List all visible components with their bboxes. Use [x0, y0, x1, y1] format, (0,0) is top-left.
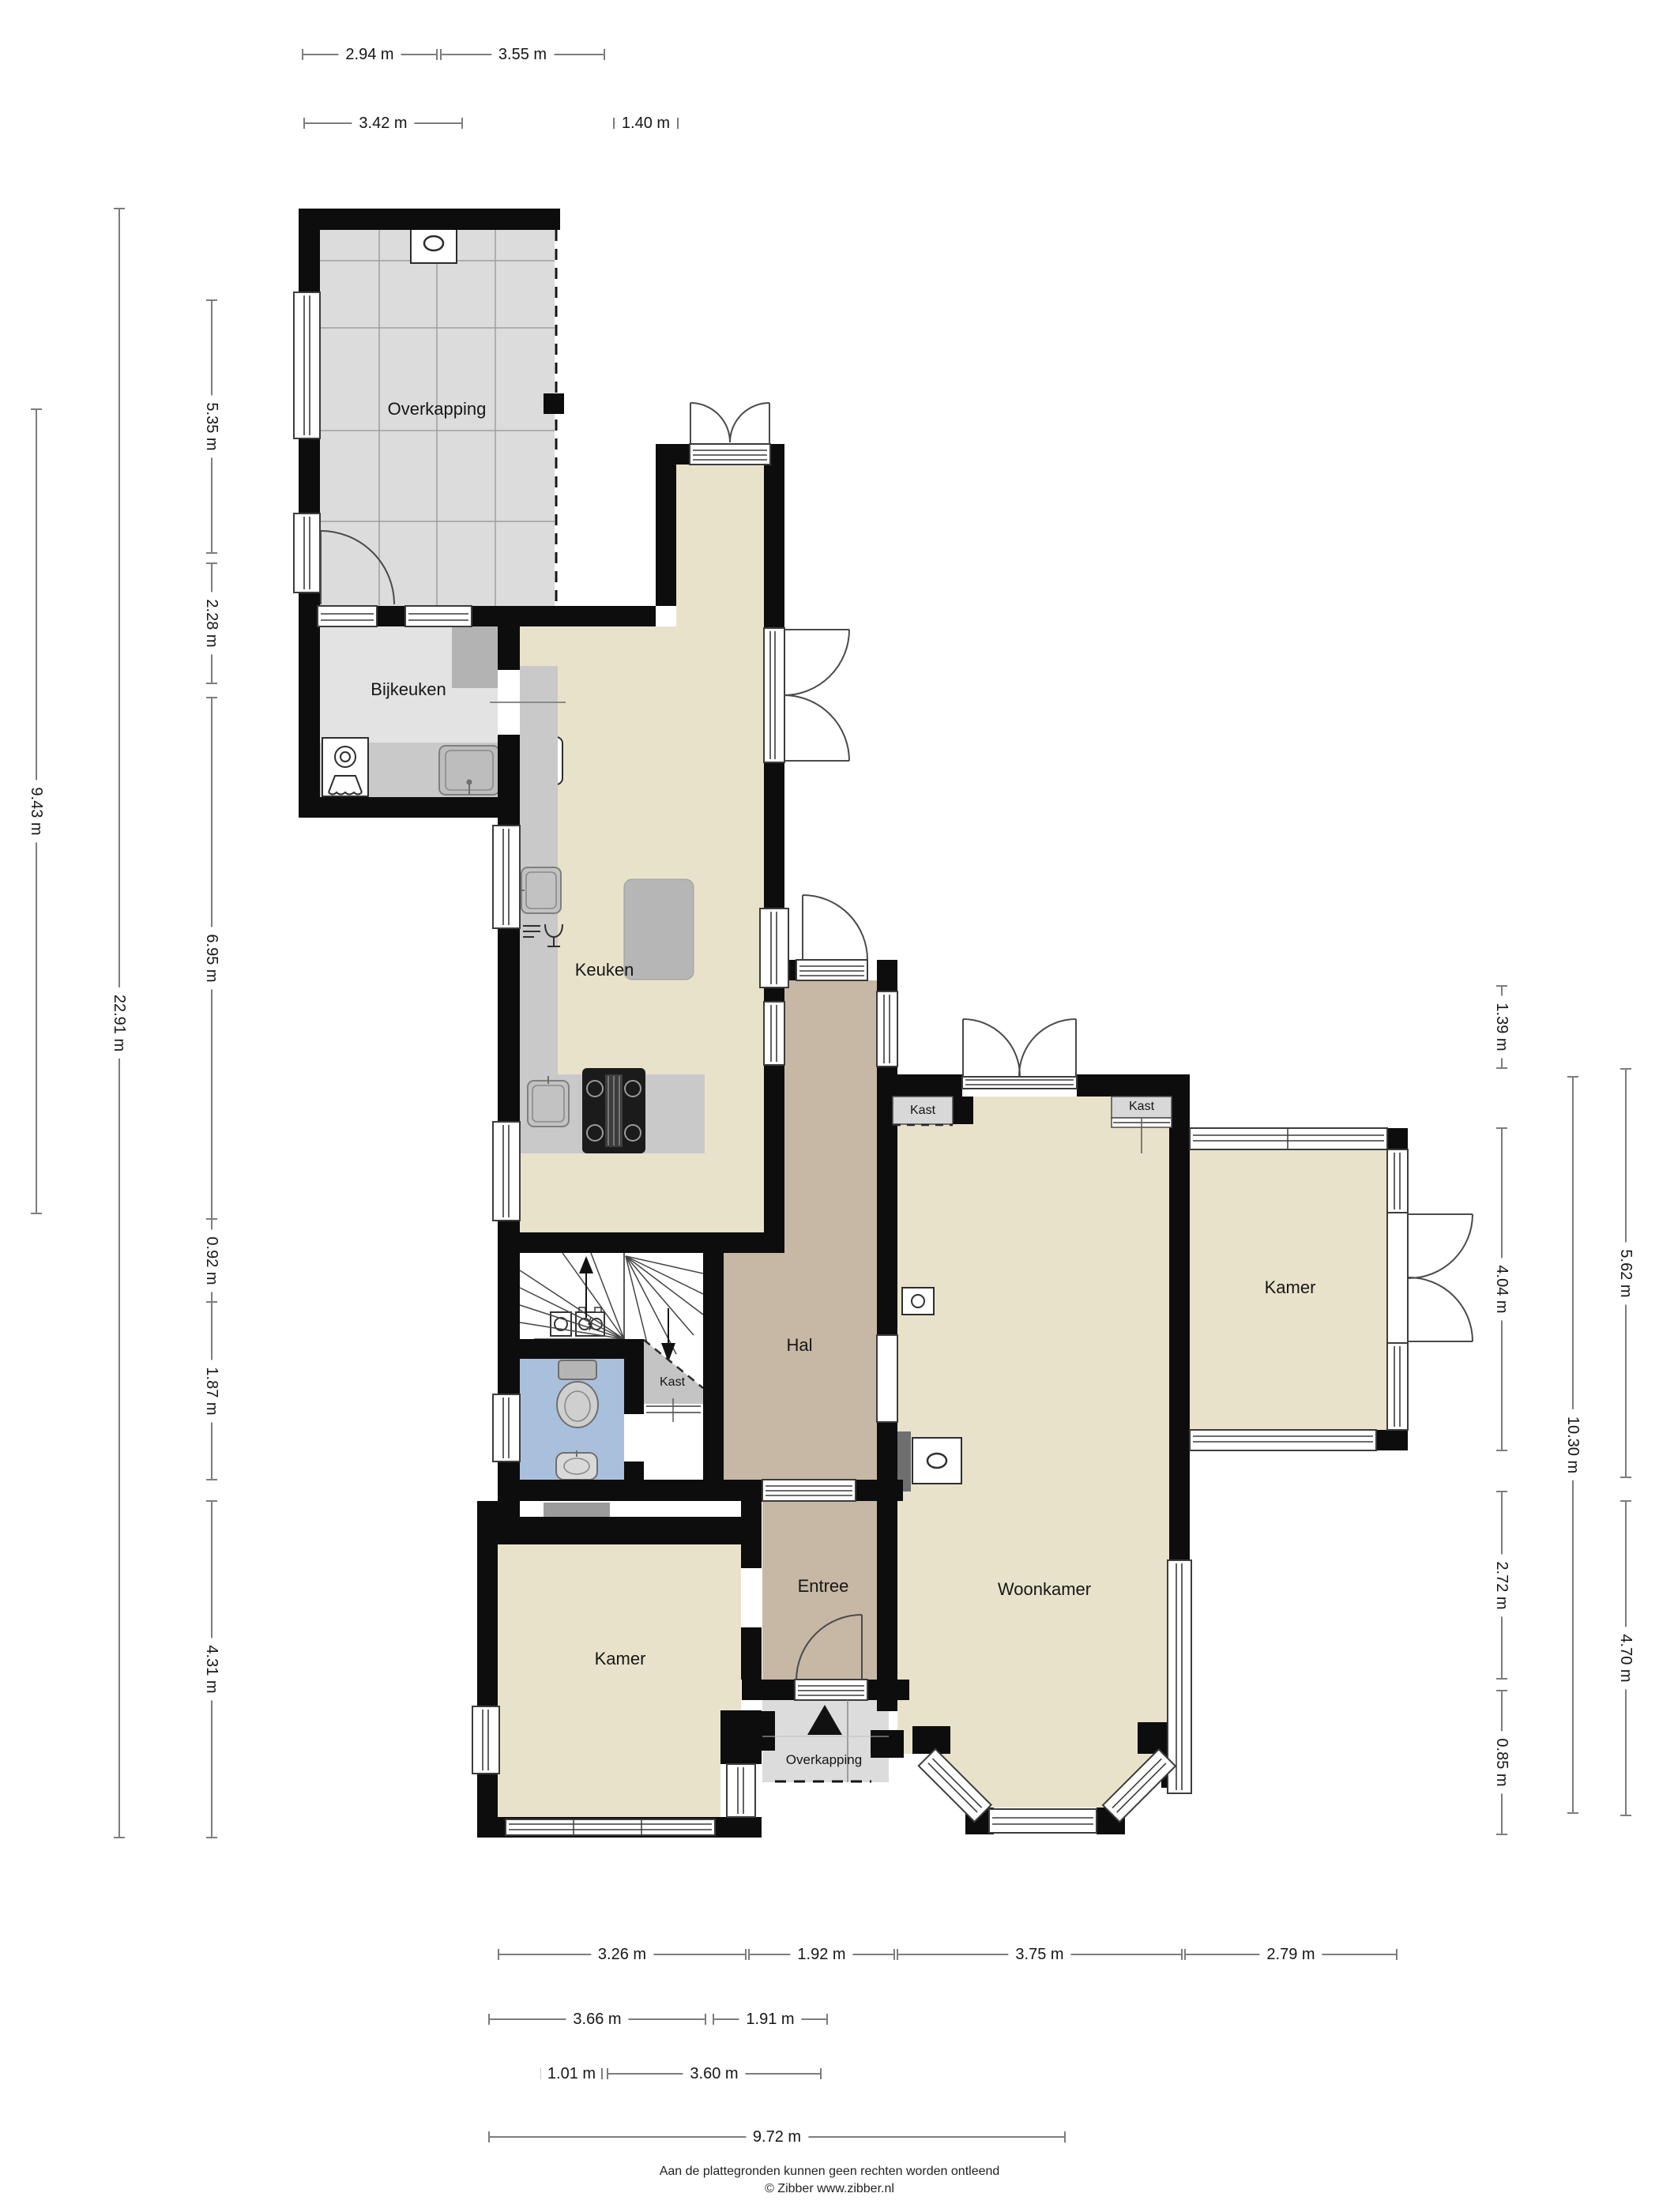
door-sill [962, 1077, 1077, 1089]
window [1387, 1149, 1408, 1213]
door-sill [796, 960, 867, 980]
door-kamer-right-french [1408, 1214, 1473, 1341]
floorplan-page: Overkapping Bijkeuken Keuken Hal Kast Ka… [0, 0, 1659, 2212]
hob-icon [582, 1068, 645, 1153]
dim-left-228: 2.28 m [211, 563, 213, 683]
dim-bottom-375: 3.75 m [897, 1954, 1182, 1955]
label-bijkeuken: Bijkeuken [371, 679, 446, 700]
label-hal: Hal [786, 1335, 812, 1356]
door-sill [762, 1480, 856, 1501]
stairs-floor [520, 1253, 703, 1339]
window [1190, 1430, 1376, 1450]
disclaimer-text: Aan de plattegronden kunnen geen rechten… [0, 2165, 1659, 2179]
label-kamer-left: Kamer [595, 1649, 646, 1669]
window [493, 1394, 520, 1461]
dim-left-695: 6.95 m [211, 698, 213, 1219]
window [764, 1002, 784, 1065]
door-keuken-garden-north [690, 403, 769, 444]
dim-bottom-366: 3.66 m [489, 2018, 705, 2020]
dim-right-404: 4.04 m [1501, 1128, 1503, 1450]
dim-right-562: 5.62 m [1625, 1069, 1627, 1477]
dim-right-470: 4.70 m [1625, 1501, 1627, 1815]
dim-top-294: 2.94 m [303, 54, 437, 55]
bijkeuken-cabinet [452, 626, 498, 688]
keuken-sink-bottom [528, 1076, 569, 1127]
window [493, 826, 520, 928]
dim-bottom-972: 9.72 m [489, 2136, 1065, 2138]
door-keuken-garden-east [784, 630, 849, 761]
door-opening [1387, 1213, 1408, 1343]
keuken-sink-top [515, 867, 561, 913]
hand-basin-icon [556, 1450, 597, 1480]
label-kast-right: Kast [1129, 1100, 1154, 1114]
kamer-left-floor [498, 1544, 741, 1817]
bay-window-bottom [989, 1809, 1097, 1833]
dim-right-1030: 10.30 m [1572, 1077, 1574, 1813]
dim-bottom-101: 1.01 m [541, 2073, 602, 2075]
fireplace-icon [895, 1431, 961, 1492]
door-sill [764, 628, 784, 762]
dim-bottom-360: 3.60 m [608, 2073, 821, 2075]
window [760, 908, 788, 987]
dim-left-535: 5.35 m [211, 300, 213, 553]
window [318, 606, 377, 626]
toilet-icon [557, 1360, 598, 1428]
dim-bottom-326: 3.26 m [498, 1954, 746, 1955]
dim-top-342: 3.42 m [304, 122, 462, 124]
dim-bottom-279: 2.79 m [1185, 1954, 1397, 1955]
dim-right-085: 0.85 m [1501, 1691, 1503, 1834]
label-keuken: Keuken [575, 960, 634, 980]
door-woonkamer-french [963, 1019, 1076, 1077]
dim-left-2291: 22.91 m [118, 209, 120, 1838]
window [877, 991, 897, 1066]
dim-bottom-192: 1.92 m [749, 1954, 894, 1955]
dim-top-355: 3.55 m [441, 54, 604, 55]
door-sill [795, 1680, 867, 1700]
label-woonkamer: Woonkamer [998, 1579, 1091, 1600]
label-entree: Entree [798, 1576, 849, 1597]
dim-left-431: 4.31 m [211, 1501, 213, 1838]
window [294, 292, 320, 438]
bijkeuken-sink [439, 746, 499, 795]
floorplan-drawing [0, 0, 1659, 2212]
dim-left-092: 0.92 m [211, 1219, 213, 1302]
window [472, 1706, 499, 1774]
dim-right-139: 1.39 m [1501, 986, 1503, 1068]
copyright-text: © Zibber www.zibber.nl [0, 2182, 1659, 2196]
window [405, 606, 472, 626]
label-kast-stairs: Kast [660, 1375, 685, 1390]
canopy-post [544, 393, 564, 414]
window [727, 1764, 755, 1817]
dim-left-943: 9.43 m [36, 409, 37, 1213]
window [1168, 1560, 1191, 1793]
socket-icon [902, 1288, 934, 1315]
dim-bottom-191: 1.91 m [713, 2018, 827, 2020]
window [294, 513, 320, 592]
dim-left-187: 1.87 m [211, 1302, 213, 1480]
label-kamer-right: Kamer [1265, 1277, 1316, 1298]
label-kast-left: Kast [910, 1104, 935, 1118]
kitchen-island [624, 879, 694, 980]
dim-right-272: 2.72 m [1501, 1492, 1503, 1679]
window [1190, 1128, 1387, 1149]
window [493, 1122, 520, 1221]
door-hal-side-entrance [803, 895, 867, 960]
door-opening [877, 1335, 897, 1422]
window [1387, 1343, 1408, 1430]
washing-machine-icon [322, 738, 368, 796]
window [506, 1819, 715, 1835]
label-overkapping-bottom: Overkapping [786, 1752, 862, 1768]
label-overkapping-top: Overkapping [388, 399, 487, 419]
door-sill [690, 444, 770, 465]
dim-top-140: 1.40 m [614, 122, 678, 124]
